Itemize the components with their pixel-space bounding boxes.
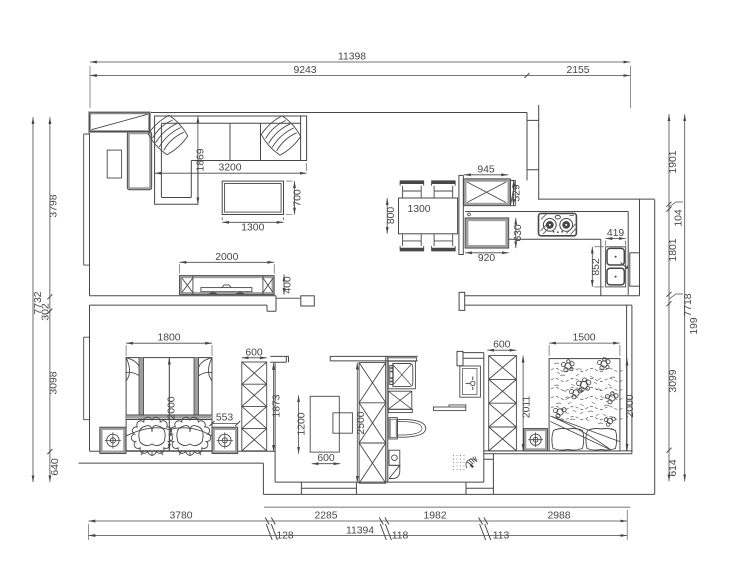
svg-text:1801: 1801 <box>668 238 679 261</box>
svg-text:1869: 1869 <box>196 148 207 171</box>
svg-text:1200: 1200 <box>297 412 308 435</box>
svg-text:419: 419 <box>607 228 625 239</box>
svg-text:945: 945 <box>477 164 495 175</box>
svg-text:1500: 1500 <box>572 333 595 344</box>
svg-text:11398: 11398 <box>338 52 366 63</box>
svg-text:2285: 2285 <box>314 510 337 521</box>
svg-text:302: 302 <box>41 303 52 321</box>
svg-text:2000: 2000 <box>625 394 636 417</box>
svg-text:3200: 3200 <box>218 162 241 173</box>
svg-text:199: 199 <box>689 317 700 335</box>
svg-text:700: 700 <box>293 189 304 207</box>
svg-text:553: 553 <box>216 413 234 424</box>
svg-text:640: 640 <box>50 458 61 476</box>
svg-text:2000: 2000 <box>215 252 238 263</box>
svg-text:852: 852 <box>591 258 602 276</box>
svg-text:3798: 3798 <box>49 194 60 217</box>
svg-text:128: 128 <box>276 531 294 542</box>
svg-text:529: 529 <box>512 184 523 202</box>
svg-text:11394: 11394 <box>346 526 374 537</box>
svg-text:104: 104 <box>674 209 685 227</box>
svg-text:800: 800 <box>386 207 397 225</box>
svg-text:9243: 9243 <box>293 65 316 76</box>
svg-text:630: 630 <box>513 224 524 242</box>
svg-text:3780: 3780 <box>169 510 192 521</box>
svg-text:2500: 2500 <box>356 411 367 434</box>
svg-text:2011: 2011 <box>522 396 533 419</box>
svg-text:2988: 2988 <box>547 510 570 521</box>
svg-text:600: 600 <box>493 340 511 351</box>
svg-text:3098: 3098 <box>49 371 60 394</box>
svg-text:1300: 1300 <box>407 204 430 215</box>
svg-text:614: 614 <box>668 459 679 477</box>
svg-text:600: 600 <box>317 453 335 464</box>
svg-text:1873: 1873 <box>272 394 283 417</box>
svg-text:7718: 7718 <box>683 293 694 316</box>
svg-text:3099: 3099 <box>668 369 679 392</box>
svg-text:1300: 1300 <box>241 223 264 234</box>
svg-text:2155: 2155 <box>566 65 589 76</box>
svg-text:2000: 2000 <box>167 396 178 419</box>
svg-text:118: 118 <box>392 531 409 542</box>
svg-text:600: 600 <box>245 347 263 358</box>
svg-text:1982: 1982 <box>423 510 446 521</box>
svg-text:920: 920 <box>478 253 496 264</box>
svg-text:113: 113 <box>493 531 510 542</box>
svg-text:400: 400 <box>283 276 294 294</box>
svg-text:1800: 1800 <box>157 333 180 344</box>
svg-text:1901: 1901 <box>668 150 679 173</box>
